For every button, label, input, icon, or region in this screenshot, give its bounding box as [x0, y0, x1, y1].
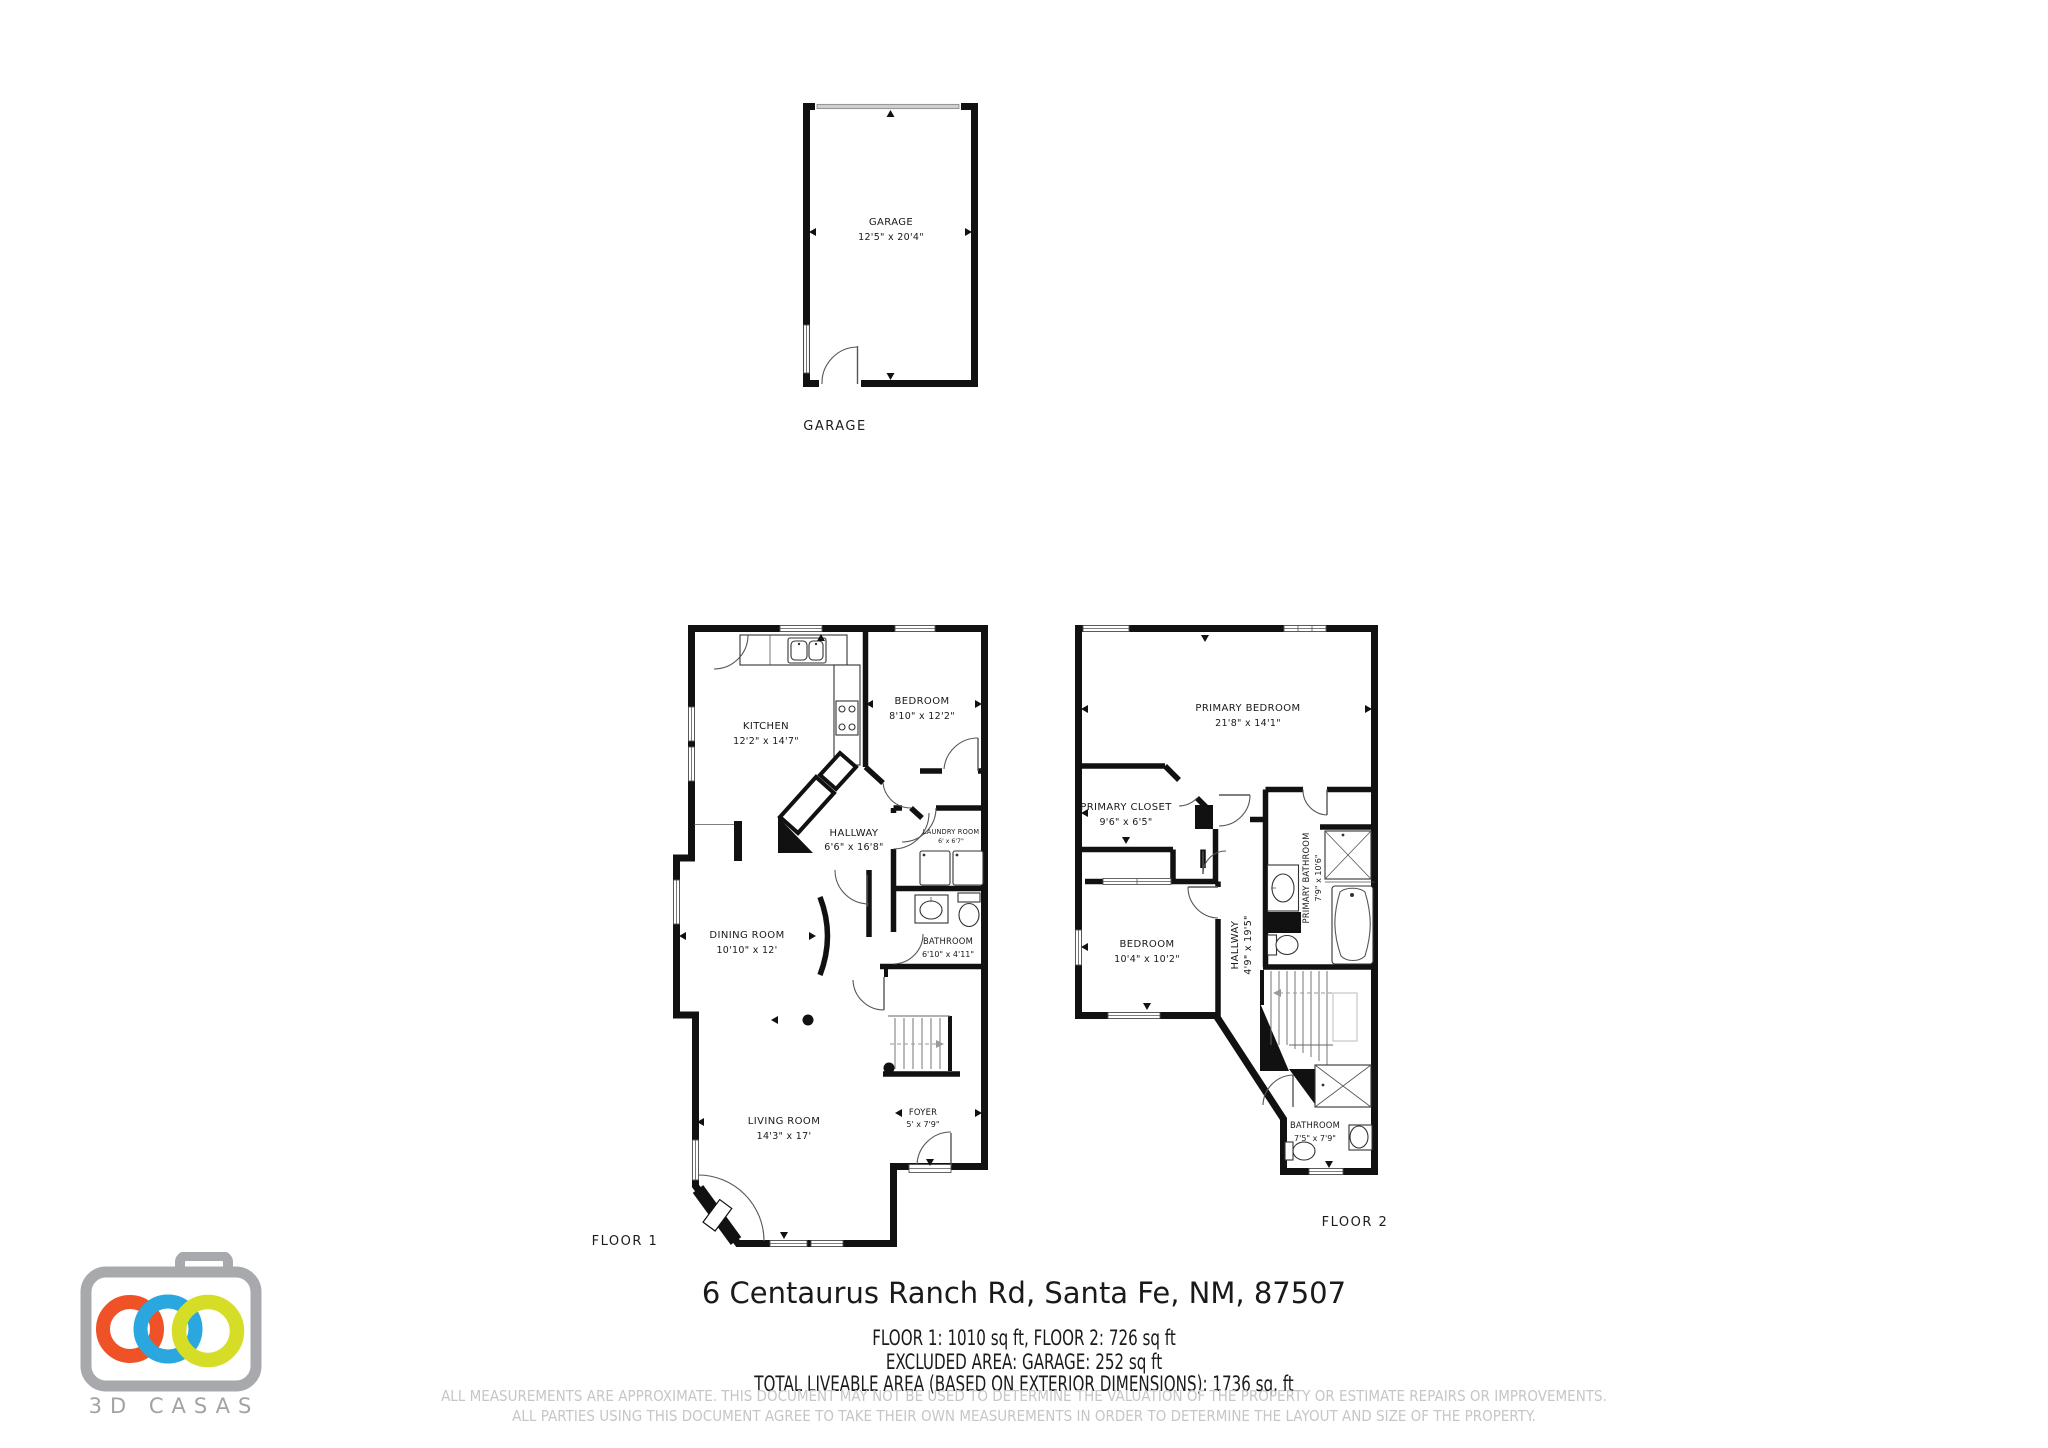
property-address: 6 Centaurus Ranch Rd, Santa Fe, NM, 8750… [0, 1276, 2048, 1310]
room-label-primary-bathroom: PRIMARY BATHROOM [1301, 832, 1311, 923]
floor-areas-line: FLOOR 1: 1010 sq ft, FLOOR 2: 726 sq ft [287, 1326, 1762, 1350]
logo-brand-text: 3D CASAS [89, 1394, 260, 1418]
bathroom-fixtures [915, 893, 980, 927]
room-dims-kitchen: 12'2" x 14'7" [733, 736, 799, 747]
room-label-dining: DINING ROOM [709, 930, 784, 941]
floor1-caption: FLOOR 1 [560, 1234, 690, 1249]
floor1-floorplan: KITCHEN 12'2" x 14'7" BEDROOM 8'10" x 12… [670, 625, 988, 1250]
room-label-primary-closet: PRIMARY CLOSET [1080, 802, 1172, 813]
room-label-foyer: FOYER [909, 1107, 937, 1117]
column-dot [803, 1015, 814, 1026]
room-label-living: LIVING ROOM [748, 1116, 820, 1127]
room-label-laundry: LAUNDRY ROOM [923, 828, 980, 836]
column-dot [884, 1063, 895, 1074]
room-dims-bathroom: 7'5" x 7'9" [1294, 1134, 1336, 1143]
room-dims-primary-bathroom: 7'9" x 10'6" [1314, 854, 1323, 901]
window [804, 325, 810, 373]
room-dims-living: 14'3" x 17' [757, 1131, 812, 1142]
room-dims-bedroom: 10'4" x 10'2" [1114, 954, 1180, 965]
room-label-bedroom: BEDROOM [895, 696, 950, 707]
room-label-bedroom: BEDROOM [1120, 939, 1175, 950]
disclaimer-line-2: ALL PARTIES USING THIS DOCUMENT AGREE TO… [102, 1407, 1945, 1425]
excluded-area-line: EXCLUDED AREA: GARAGE: 252 sq ft [287, 1350, 1762, 1374]
stove-symbol [836, 701, 858, 735]
room-dims-primary-bedroom: 21'8" x 14'1" [1215, 718, 1281, 729]
room-dims-bedroom: 8'10" x 12'2" [889, 711, 955, 722]
garage-door-band [815, 103, 961, 110]
room-dims-foyer: 5' x 7'9" [906, 1120, 939, 1129]
room-label-bathroom: BATHROOM [923, 936, 973, 946]
room-dims-hallway: 4'9" x 19'5" [1243, 915, 1254, 974]
room-dims-hallway: 6'6" x 16'8" [824, 842, 883, 853]
room-label-hallway: HALLWAY [830, 828, 879, 839]
toilet-symbol [1268, 935, 1277, 955]
room-dims-garage: 12'5" x 20'4" [858, 232, 924, 243]
room-label-garage: GARAGE [869, 217, 913, 228]
floor2-caption: FLOOR 2 [1290, 1215, 1420, 1230]
room-dims-bathroom: 6'10" x 4'11" [922, 950, 974, 959]
garage-caption: GARAGE [770, 419, 900, 434]
room-label-kitchen: KITCHEN [743, 721, 789, 732]
room-label-primary-bedroom: PRIMARY BEDROOM [1195, 703, 1300, 714]
garage-exterior-walls [807, 107, 975, 384]
room-label-hallway: HALLWAY [1230, 920, 1241, 969]
room-dims-laundry: 6' x 6'7" [938, 838, 964, 845]
garage-floorplan: GARAGE 12'5" x 20'4" [803, 103, 978, 387]
3d-casas-logo: 3D CASAS [78, 1252, 278, 1422]
floor2-floorplan: PRIMARY BEDROOM 21'8" x 14'1" PRIMARY CL… [1075, 625, 1378, 1180]
room-dims-dining: 10'10" x 12' [716, 945, 777, 956]
toilet-symbol [958, 893, 980, 902]
disclaimer-line-1: ALL MEASUREMENTS ARE APPROXIMATE. THIS D… [102, 1387, 1945, 1405]
room-label-bathroom: BATHROOM [1290, 1120, 1340, 1130]
room-dims-primary-closet: 9'6" x 6'5" [1099, 817, 1152, 828]
toilet-symbol [1285, 1142, 1293, 1160]
